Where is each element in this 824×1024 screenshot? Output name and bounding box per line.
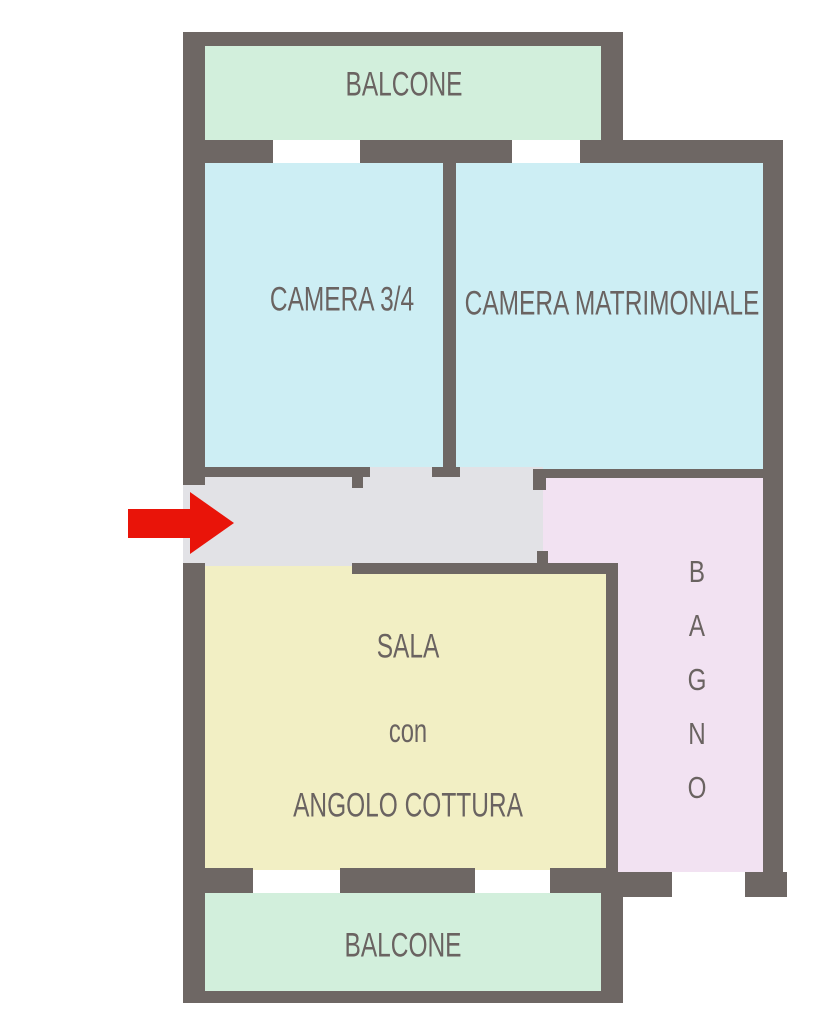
wall-left-lower	[183, 563, 205, 1003]
wall-matrimoniale-bottom	[533, 469, 763, 478]
wall-camera34-bottom	[202, 467, 370, 477]
label-sala-con: con	[389, 712, 427, 750]
wall-bagno-bottom-b	[745, 872, 787, 897]
label-bagno-letter-a: A	[689, 608, 705, 644]
wall-camera34-door-jamb	[352, 477, 363, 488]
label-bagno-letter-n: N	[688, 716, 705, 752]
label-balcone-bottom: BALCONE	[345, 927, 462, 966]
wall-camera-divider	[443, 163, 456, 468]
wall-sala-bottom-a	[183, 868, 253, 893]
label-angolo-cottura: ANGOLO COTTURA	[293, 787, 523, 826]
wall-balcony-bottom-outer	[183, 991, 623, 1003]
label-balcone-top: BALCONE	[346, 66, 463, 105]
wall-top-segment-a	[183, 140, 273, 163]
entrance-arrow-tail	[128, 509, 190, 538]
wall-balcony-top-outer	[183, 32, 623, 46]
wall-camera-divider-foot	[432, 467, 460, 477]
wall-top-segment-b	[360, 140, 512, 163]
entrance-arrow-head	[190, 492, 234, 554]
wall-left-upper	[183, 32, 205, 485]
floor-plan: BALCONE CAMERA 3/4 CAMERA MATRIMONIALE S…	[0, 0, 824, 1024]
wall-sala-bottom-b	[340, 868, 475, 893]
label-camera-matrimoniale: CAMERA MATRIMONIALE	[465, 285, 760, 324]
label-bagno-letter-g: G	[688, 662, 707, 698]
wall-bagno-bottom-a	[618, 872, 672, 897]
label-camera-34: CAMERA 3/4	[270, 281, 414, 320]
label-bagno-letter-b: B	[689, 554, 705, 590]
wall-top-segment-c	[580, 140, 783, 163]
wall-balcony-top-right	[601, 32, 623, 144]
wall-bagno-door-jamb-top	[533, 478, 546, 490]
label-bagno-letter-o: O	[688, 770, 707, 806]
room-corridoio	[183, 467, 543, 568]
wall-balcony-bottom-right	[601, 872, 623, 1003]
wall-sala-bagno-divider	[606, 563, 618, 872]
label-sala: SALA	[377, 628, 440, 667]
wall-right-outer	[763, 140, 783, 897]
wall-bagno-door-jamb-bottom	[537, 551, 548, 563]
wall-sala-top	[352, 563, 618, 574]
